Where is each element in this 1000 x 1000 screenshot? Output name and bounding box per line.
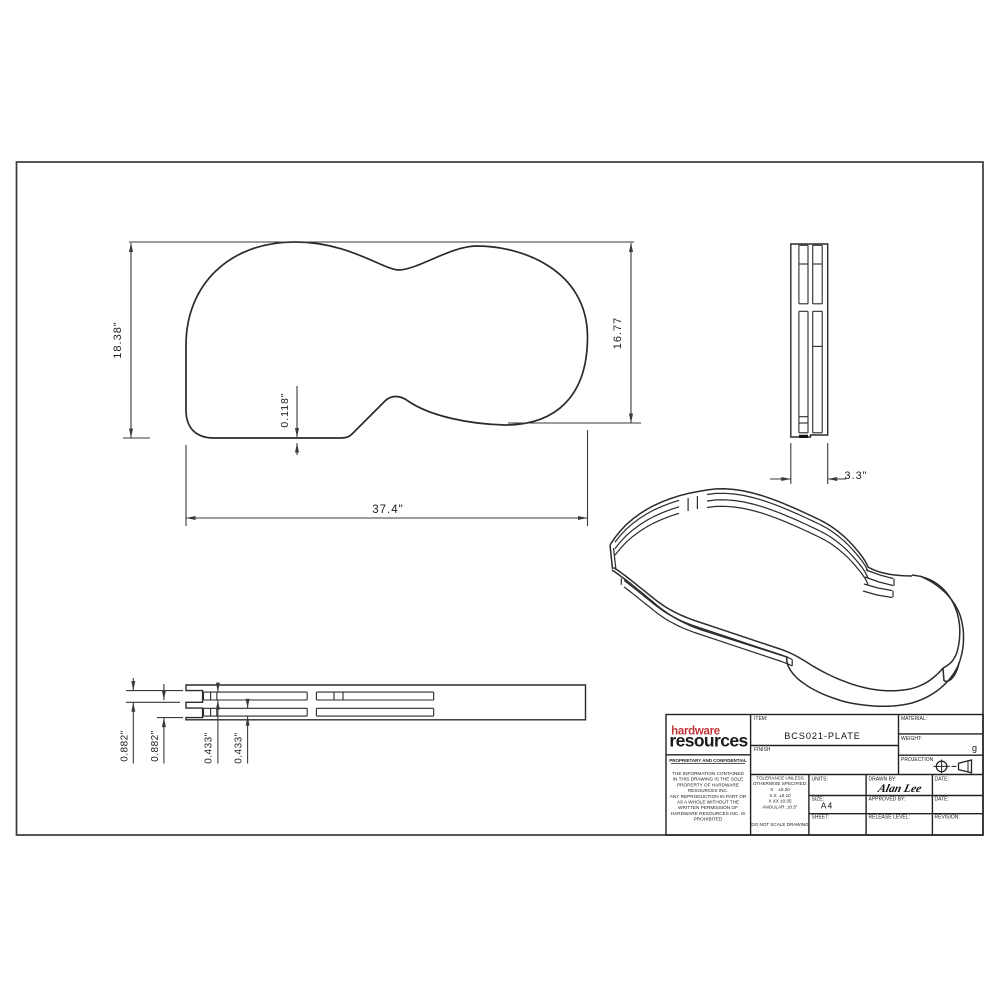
svg-text:A4: A4: [821, 801, 833, 811]
svg-text:16.77: 16.77: [612, 317, 624, 350]
svg-text:OTHERWISE SPECIFIED:: OTHERWISE SPECIFIED:: [753, 781, 807, 786]
svg-text:0.433": 0.433": [234, 732, 245, 764]
svg-text:DATE:: DATE:: [935, 777, 949, 783]
svg-text:X.XX ±0.05: X.XX ±0.05: [768, 799, 792, 804]
svg-text:TOLERANCE UNLESS: TOLERANCE UNLESS: [756, 776, 804, 781]
svg-text:APPROVED BY:: APPROVED BY:: [869, 797, 906, 803]
svg-text:0.433": 0.433": [204, 732, 215, 764]
svg-text:MATERIAL:: MATERIAL:: [901, 716, 927, 722]
svg-text:ANGULAR: ±0.5°: ANGULAR: ±0.5°: [762, 805, 798, 810]
svg-text:DO NOT SCALE DRAWING: DO NOT SCALE DRAWING: [751, 822, 809, 827]
svg-text:g: g: [972, 743, 978, 753]
svg-text:AS A WHOLE WITHOUT THE: AS A WHOLE WITHOUT THE: [677, 800, 739, 805]
svg-text:0.118": 0.118": [279, 392, 291, 427]
svg-text:X ±0.20: X ±0.20: [770, 787, 790, 792]
svg-text:PROPRIETARY AND CONFIDENTIAL: PROPRIETARY AND CONFIDENTIAL: [669, 758, 747, 763]
svg-text:3.3": 3.3": [844, 470, 867, 482]
svg-text:0.882": 0.882": [150, 730, 161, 762]
svg-text:18.38": 18.38": [112, 321, 124, 358]
svg-text:WRITTEN PERMISSION OF: WRITTEN PERMISSION OF: [678, 805, 738, 810]
svg-text:ANY REPRODUCTION IN PART OR: ANY REPRODUCTION IN PART OR: [670, 794, 747, 799]
svg-text:PROJECTION: PROJECTION: [901, 757, 934, 763]
svg-text:37.4": 37.4": [372, 504, 403, 516]
svg-text:ITEM:: ITEM:: [754, 716, 767, 722]
svg-text:REVISION:: REVISION:: [935, 815, 960, 821]
svg-text:THE INFORMATION CONTAINED: THE INFORMATION CONTAINED: [672, 771, 744, 776]
svg-text:RELEASE LEVEL:: RELEASE LEVEL:: [869, 815, 910, 821]
svg-text:WEIGHT:: WEIGHT:: [901, 736, 922, 742]
svg-text:BCS021-PLATE: BCS021-PLATE: [784, 731, 861, 741]
svg-text:SHEET:: SHEET:: [812, 815, 830, 821]
svg-text:Alan Lee: Alan Lee: [876, 782, 923, 795]
svg-text:DATE:: DATE:: [935, 797, 949, 803]
svg-text:HARDWARE RESOURCES INC. IS: HARDWARE RESOURCES INC. IS: [671, 811, 746, 816]
svg-text:UNITS:: UNITS:: [812, 777, 828, 783]
svg-text:IN THIS DRAWING IS THE SOLE: IN THIS DRAWING IS THE SOLE: [673, 777, 744, 782]
svg-text:PROHIBITED: PROHIBITED: [694, 817, 723, 822]
svg-text:PROPERTY OF HARDWARE: PROPERTY OF HARDWARE: [677, 782, 739, 787]
svg-text:0.882": 0.882": [120, 730, 131, 762]
svg-text:FINISH: FINISH: [754, 747, 771, 753]
svg-text:X.X ±0.10: X.X ±0.10: [769, 793, 791, 798]
svg-text:resources: resources: [669, 731, 748, 751]
svg-text:RESOURCES INC.: RESOURCES INC.: [688, 788, 728, 793]
